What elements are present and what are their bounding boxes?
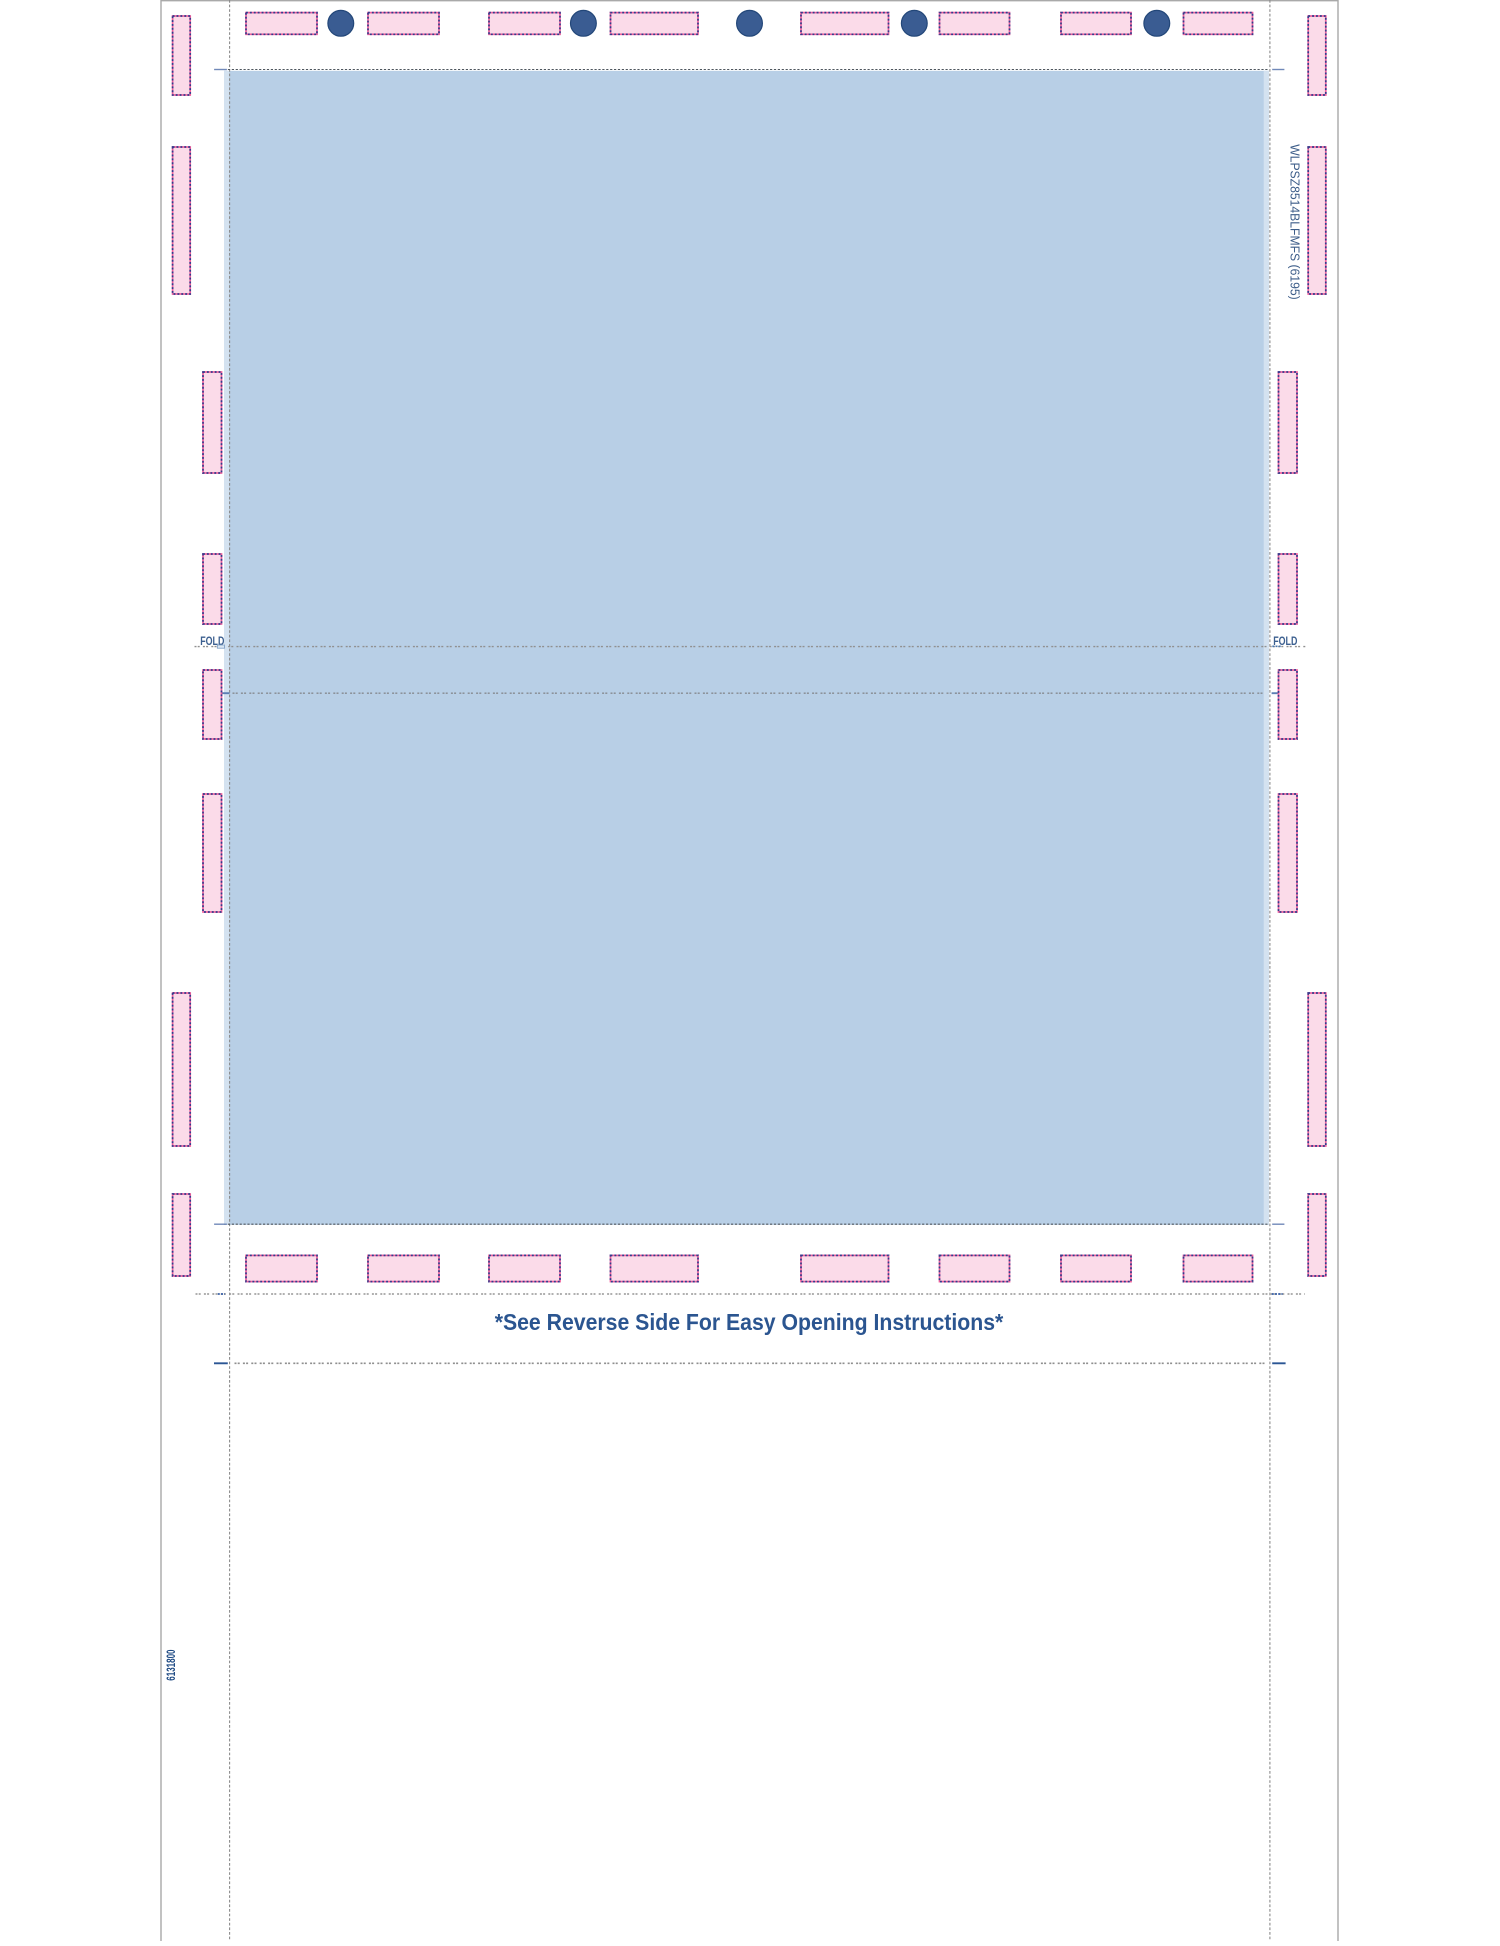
svg-text:*See Reverse Side For Easy Ope: *See Reverse Side For Easy Opening Instr…: [495, 1309, 1004, 1335]
svg-text:FOLD: FOLD: [1273, 634, 1297, 648]
svg-text:6131800: 6131800: [166, 1650, 178, 1681]
svg-text:WLPSZ8514BLFMFS (6195): WLPSZ8514BLFMFS (6195): [1287, 144, 1302, 300]
